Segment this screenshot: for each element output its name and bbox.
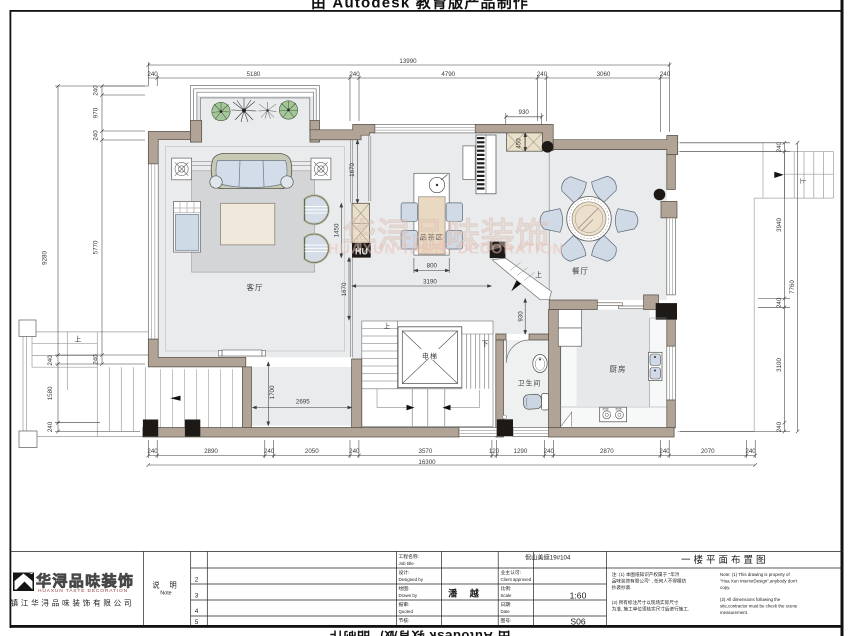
svg-text:Date: Date <box>501 609 511 614</box>
svg-text:设计:: 设计: <box>399 569 410 576</box>
svg-text:1580: 1580 <box>47 386 54 400</box>
svg-text:240: 240 <box>147 71 158 78</box>
svg-text:客厅: 客厅 <box>247 282 264 292</box>
svg-text:240: 240 <box>660 71 671 78</box>
svg-text:HUAXUN TASTE DECORATION: HUAXUN TASTE DECORATION <box>38 588 128 594</box>
svg-text:1670: 1670 <box>341 282 348 296</box>
svg-text:Designed by: Designed by <box>399 577 424 582</box>
svg-text:业主认可:: 业主认可: <box>501 569 522 576</box>
svg-text:3: 3 <box>195 593 199 600</box>
svg-text:上: 上 <box>384 322 391 331</box>
svg-text:下: 下 <box>482 340 489 348</box>
svg-text:3940: 3940 <box>776 218 783 232</box>
svg-text:240: 240 <box>349 71 360 78</box>
svg-text:970: 970 <box>93 107 100 118</box>
svg-text:上: 上 <box>535 270 542 279</box>
svg-text:240: 240 <box>776 421 783 432</box>
svg-text:3570: 3570 <box>419 448 433 455</box>
svg-text:2695: 2695 <box>296 399 310 406</box>
svg-text:上: 上 <box>74 335 81 344</box>
svg-text:品味装饰有限公司" , 任何人不得模仿: 品味装饰有限公司" , 任何人不得模仿 <box>612 578 687 585</box>
svg-text:电梯: 电梯 <box>422 352 438 361</box>
svg-text:镇 江 华 浔 品 味 装 饰 有 限 公 司: 镇 江 华 浔 品 味 装 饰 有 限 公 司 <box>11 598 132 608</box>
svg-text:measurement.: measurement. <box>720 610 748 615</box>
svg-text:卫生间: 卫生间 <box>518 379 541 388</box>
svg-text:注: (1) 本图纸知识产权属于 "华浔: 注: (1) 本图纸知识产权属于 "华浔 <box>612 571 680 578</box>
svg-text:报审:: 报审: <box>399 601 410 608</box>
svg-text:1450: 1450 <box>334 223 341 237</box>
svg-text:HU: HU <box>355 247 368 257</box>
svg-text:240: 240 <box>47 355 54 366</box>
svg-text:S06: S06 <box>570 617 586 627</box>
svg-text:绘图:: 绘图: <box>399 585 410 592</box>
svg-text:240: 240 <box>93 85 100 96</box>
svg-text:图号:: 图号: <box>501 618 512 624</box>
svg-text:Note: (1) This drawing is pro: Note: (1) This drawing is property of <box>720 572 790 577</box>
svg-text:比例:: 比例: <box>501 585 512 592</box>
svg-text:为准, 施工单位须核实尺寸后进行施工.: 为准, 施工单位须核实尺寸后进行施工. <box>612 606 689 613</box>
svg-text:13990: 13990 <box>399 58 417 65</box>
svg-text:3190: 3190 <box>423 279 437 286</box>
svg-text:侃山美遮19#104: 侃山美遮19#104 <box>525 554 571 562</box>
svg-text:240: 240 <box>47 421 54 432</box>
svg-text:日期:: 日期: <box>501 602 512 608</box>
svg-text:Scale: Scale <box>501 593 513 598</box>
svg-text:2070: 2070 <box>701 448 715 455</box>
svg-text:Drawn by: Drawn by <box>399 593 418 598</box>
svg-text:7760: 7760 <box>789 280 796 294</box>
svg-text:2890: 2890 <box>204 448 218 455</box>
svg-text:240: 240 <box>537 71 548 78</box>
svg-text:240: 240 <box>349 448 360 455</box>
svg-text:930: 930 <box>519 109 530 116</box>
svg-text:3100: 3100 <box>776 358 783 372</box>
svg-text:240: 240 <box>264 448 275 455</box>
svg-text:1670: 1670 <box>349 163 356 177</box>
svg-text:240: 240 <box>93 130 100 141</box>
svg-text:"Hua Xun InteriorDesign",anybo: "Hua Xun InteriorDesign",anybody don't <box>720 579 798 584</box>
svg-text:1290: 1290 <box>514 448 528 455</box>
svg-text:240: 240 <box>544 448 555 455</box>
svg-text:潘 越: 潘 越 <box>448 588 484 599</box>
svg-text:Job title: Job title <box>399 561 415 566</box>
svg-text:4790: 4790 <box>441 71 455 78</box>
svg-text:240: 240 <box>776 297 783 308</box>
svg-text:120: 120 <box>489 448 500 455</box>
svg-text:2: 2 <box>195 577 199 584</box>
svg-text:800: 800 <box>427 263 438 270</box>
svg-text:3060: 3060 <box>597 71 611 78</box>
svg-text:5180: 5180 <box>247 71 261 78</box>
svg-text:5: 5 <box>195 619 199 626</box>
svg-text:Quoted: Quoted <box>399 609 414 614</box>
svg-text:240: 240 <box>147 448 158 455</box>
svg-text:(2) All dimensions following t: (2) All dimensions following the <box>720 597 781 602</box>
svg-text:1700: 1700 <box>269 385 276 399</box>
svg-text:节核:: 节核: <box>399 617 410 624</box>
svg-text:华浔品味装饰: 华浔品味装饰 <box>36 572 135 590</box>
svg-text:9280: 9280 <box>42 251 49 265</box>
svg-text:450: 450 <box>516 138 523 149</box>
svg-text:餐厅: 餐厅 <box>572 267 589 276</box>
svg-text:16300: 16300 <box>418 459 436 466</box>
svg-text:site,contractor must be check: site,contractor must be check the scene <box>720 604 798 609</box>
svg-text:2870: 2870 <box>600 448 614 455</box>
svg-text:240: 240 <box>776 141 783 152</box>
svg-text:240: 240 <box>659 448 670 455</box>
svg-text:240: 240 <box>93 354 100 365</box>
svg-text:240: 240 <box>745 448 756 455</box>
svg-text:Note: Note <box>160 591 171 597</box>
svg-text:由 Autodesk 教育版产品制作: 由 Autodesk 教育版产品制作 <box>311 0 529 12</box>
svg-text:1:60: 1:60 <box>570 591 587 601</box>
svg-text:5770: 5770 <box>93 240 100 254</box>
svg-text:Client approved: Client approved <box>501 577 532 582</box>
svg-text:一楼平面布置图: 一楼平面布置图 <box>681 554 769 566</box>
svg-text:抄袭抄袭.: 抄袭抄袭. <box>612 584 632 591</box>
svg-text:(2) 所有标注尺寸以现场实际尺寸: (2) 所有标注尺寸以现场实际尺寸 <box>612 599 679 606</box>
svg-text:2050: 2050 <box>305 448 319 455</box>
svg-text:930: 930 <box>517 311 524 322</box>
svg-text:说 明: 说 明 <box>152 581 180 590</box>
svg-text:由 Autodesk 教育版产品制作: 由 Autodesk 教育版产品制作 <box>329 629 510 636</box>
svg-text:工程名称:: 工程名称: <box>399 553 420 560</box>
svg-text:copy.: copy. <box>720 585 730 590</box>
svg-text:4: 4 <box>195 608 199 615</box>
svg-text:上: 上 <box>799 178 807 184</box>
svg-text:厨房: 厨房 <box>610 364 627 374</box>
